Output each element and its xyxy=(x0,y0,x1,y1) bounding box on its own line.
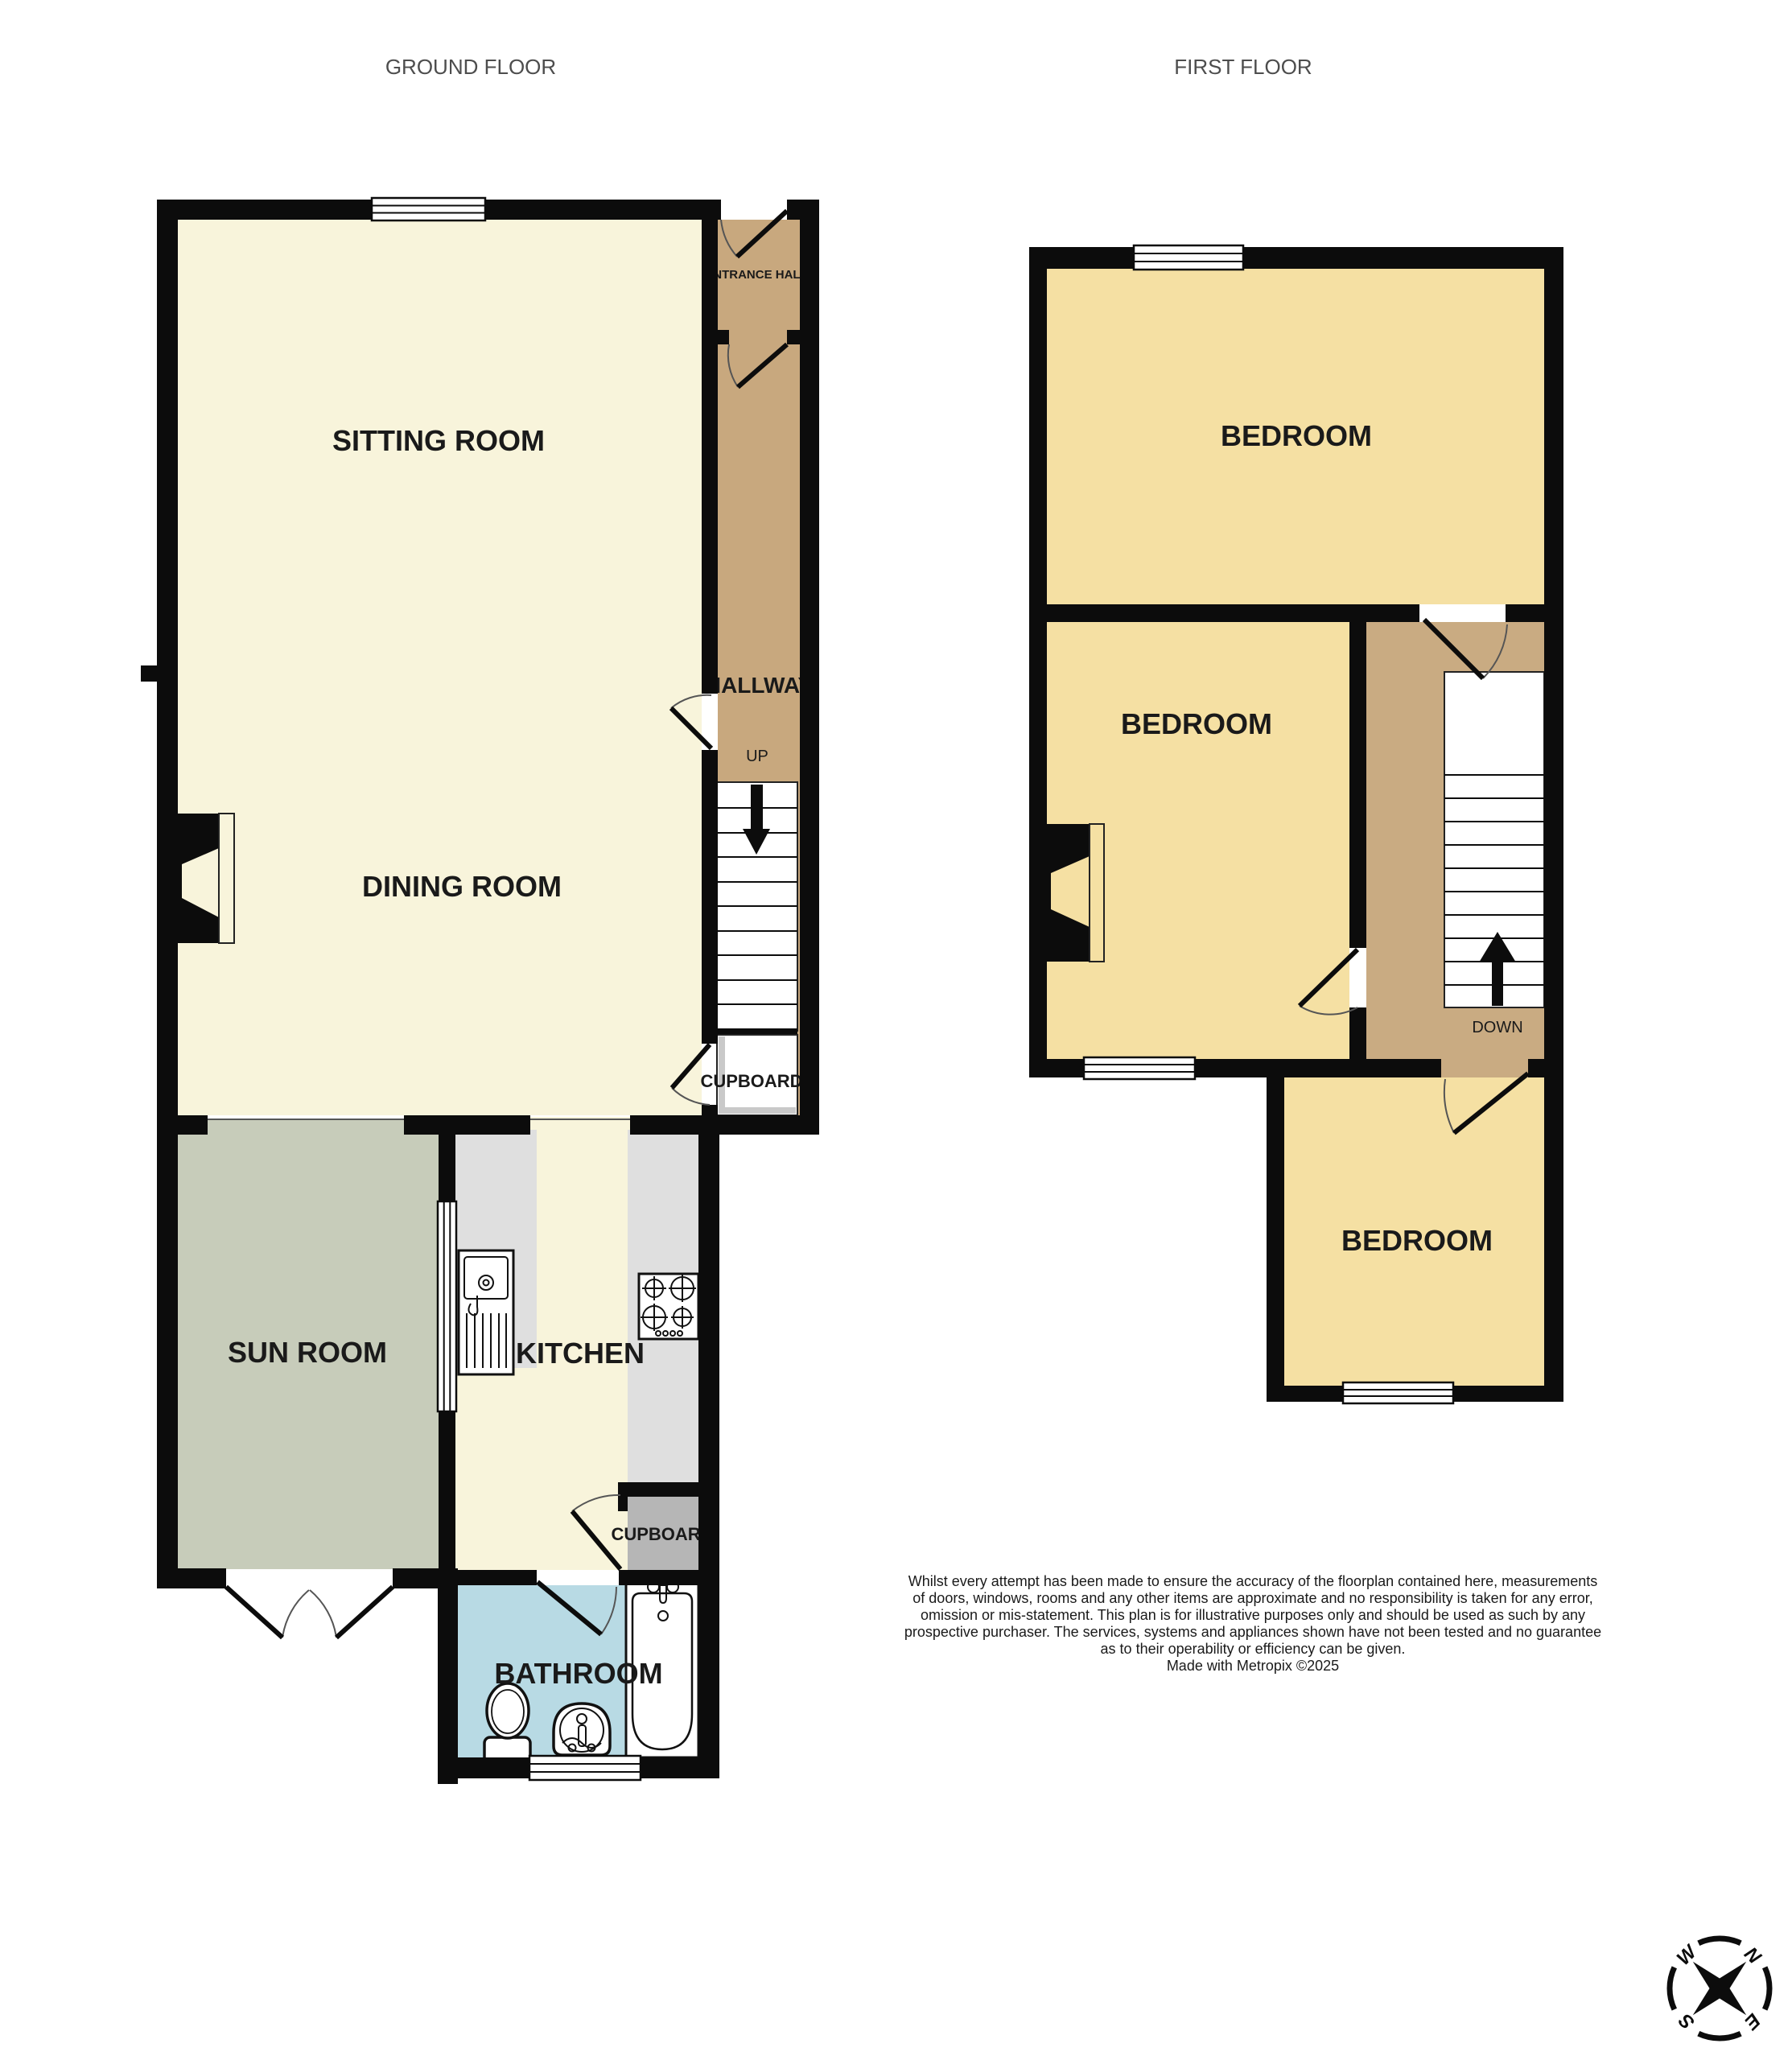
svg-text:omission or mis-statement. Thi: omission or mis-statement. This plan is … xyxy=(921,1607,1585,1623)
svg-text:BEDROOM: BEDROOM xyxy=(1221,419,1372,452)
svg-text:FIRST FLOOR: FIRST FLOOR xyxy=(1174,55,1312,79)
svg-text:BEDROOM: BEDROOM xyxy=(1341,1224,1493,1257)
svg-text:BATHROOM: BATHROOM xyxy=(494,1657,662,1690)
svg-text:Whilst every attempt has been: Whilst every attempt has been made to en… xyxy=(908,1573,1597,1589)
svg-text:DOWN: DOWN xyxy=(1472,1019,1522,1036)
svg-text:SITTING ROOM: SITTING ROOM xyxy=(332,424,545,457)
svg-text:as to their operability or eff: as to their operability or efficiency ca… xyxy=(1101,1641,1406,1657)
svg-text:DINING ROOM: DINING ROOM xyxy=(362,870,562,903)
svg-text:of doors, windows, rooms and a: of doors, windows, rooms and any other i… xyxy=(912,1590,1592,1606)
svg-text:KITCHEN: KITCHEN xyxy=(516,1337,645,1370)
svg-text:CUPBOARD: CUPBOARD xyxy=(700,1071,802,1091)
svg-text:BEDROOM: BEDROOM xyxy=(1121,707,1272,740)
svg-text:HALLWAY: HALLWAY xyxy=(705,673,814,698)
svg-text:UP: UP xyxy=(746,748,768,765)
svg-text:CUPBOARD: CUPBOARD xyxy=(611,1524,713,1544)
svg-text:SUN ROOM: SUN ROOM xyxy=(228,1336,387,1369)
svg-text:prospective purchaser. The ser: prospective purchaser. The services, sys… xyxy=(904,1624,1601,1640)
svg-text:GROUND FLOOR: GROUND FLOOR xyxy=(385,55,556,79)
svg-text:Made with Metropix ©2025: Made with Metropix ©2025 xyxy=(1167,1658,1339,1674)
svg-text:ENTRANCE HALL: ENTRANCE HALL xyxy=(705,268,808,282)
